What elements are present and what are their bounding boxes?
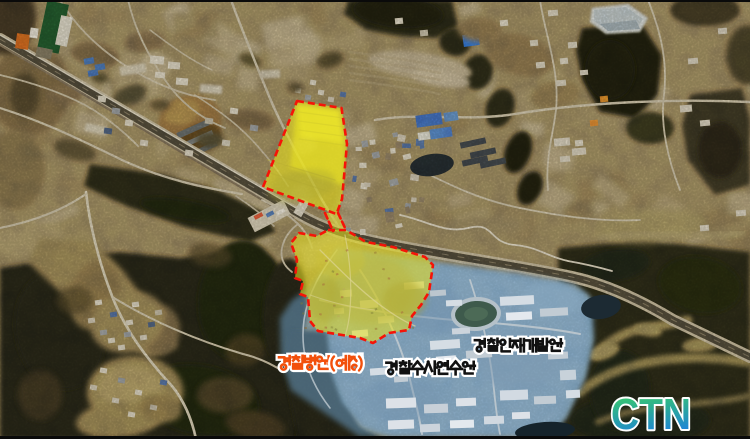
- svg-text:CTN: CTN: [611, 390, 691, 439]
